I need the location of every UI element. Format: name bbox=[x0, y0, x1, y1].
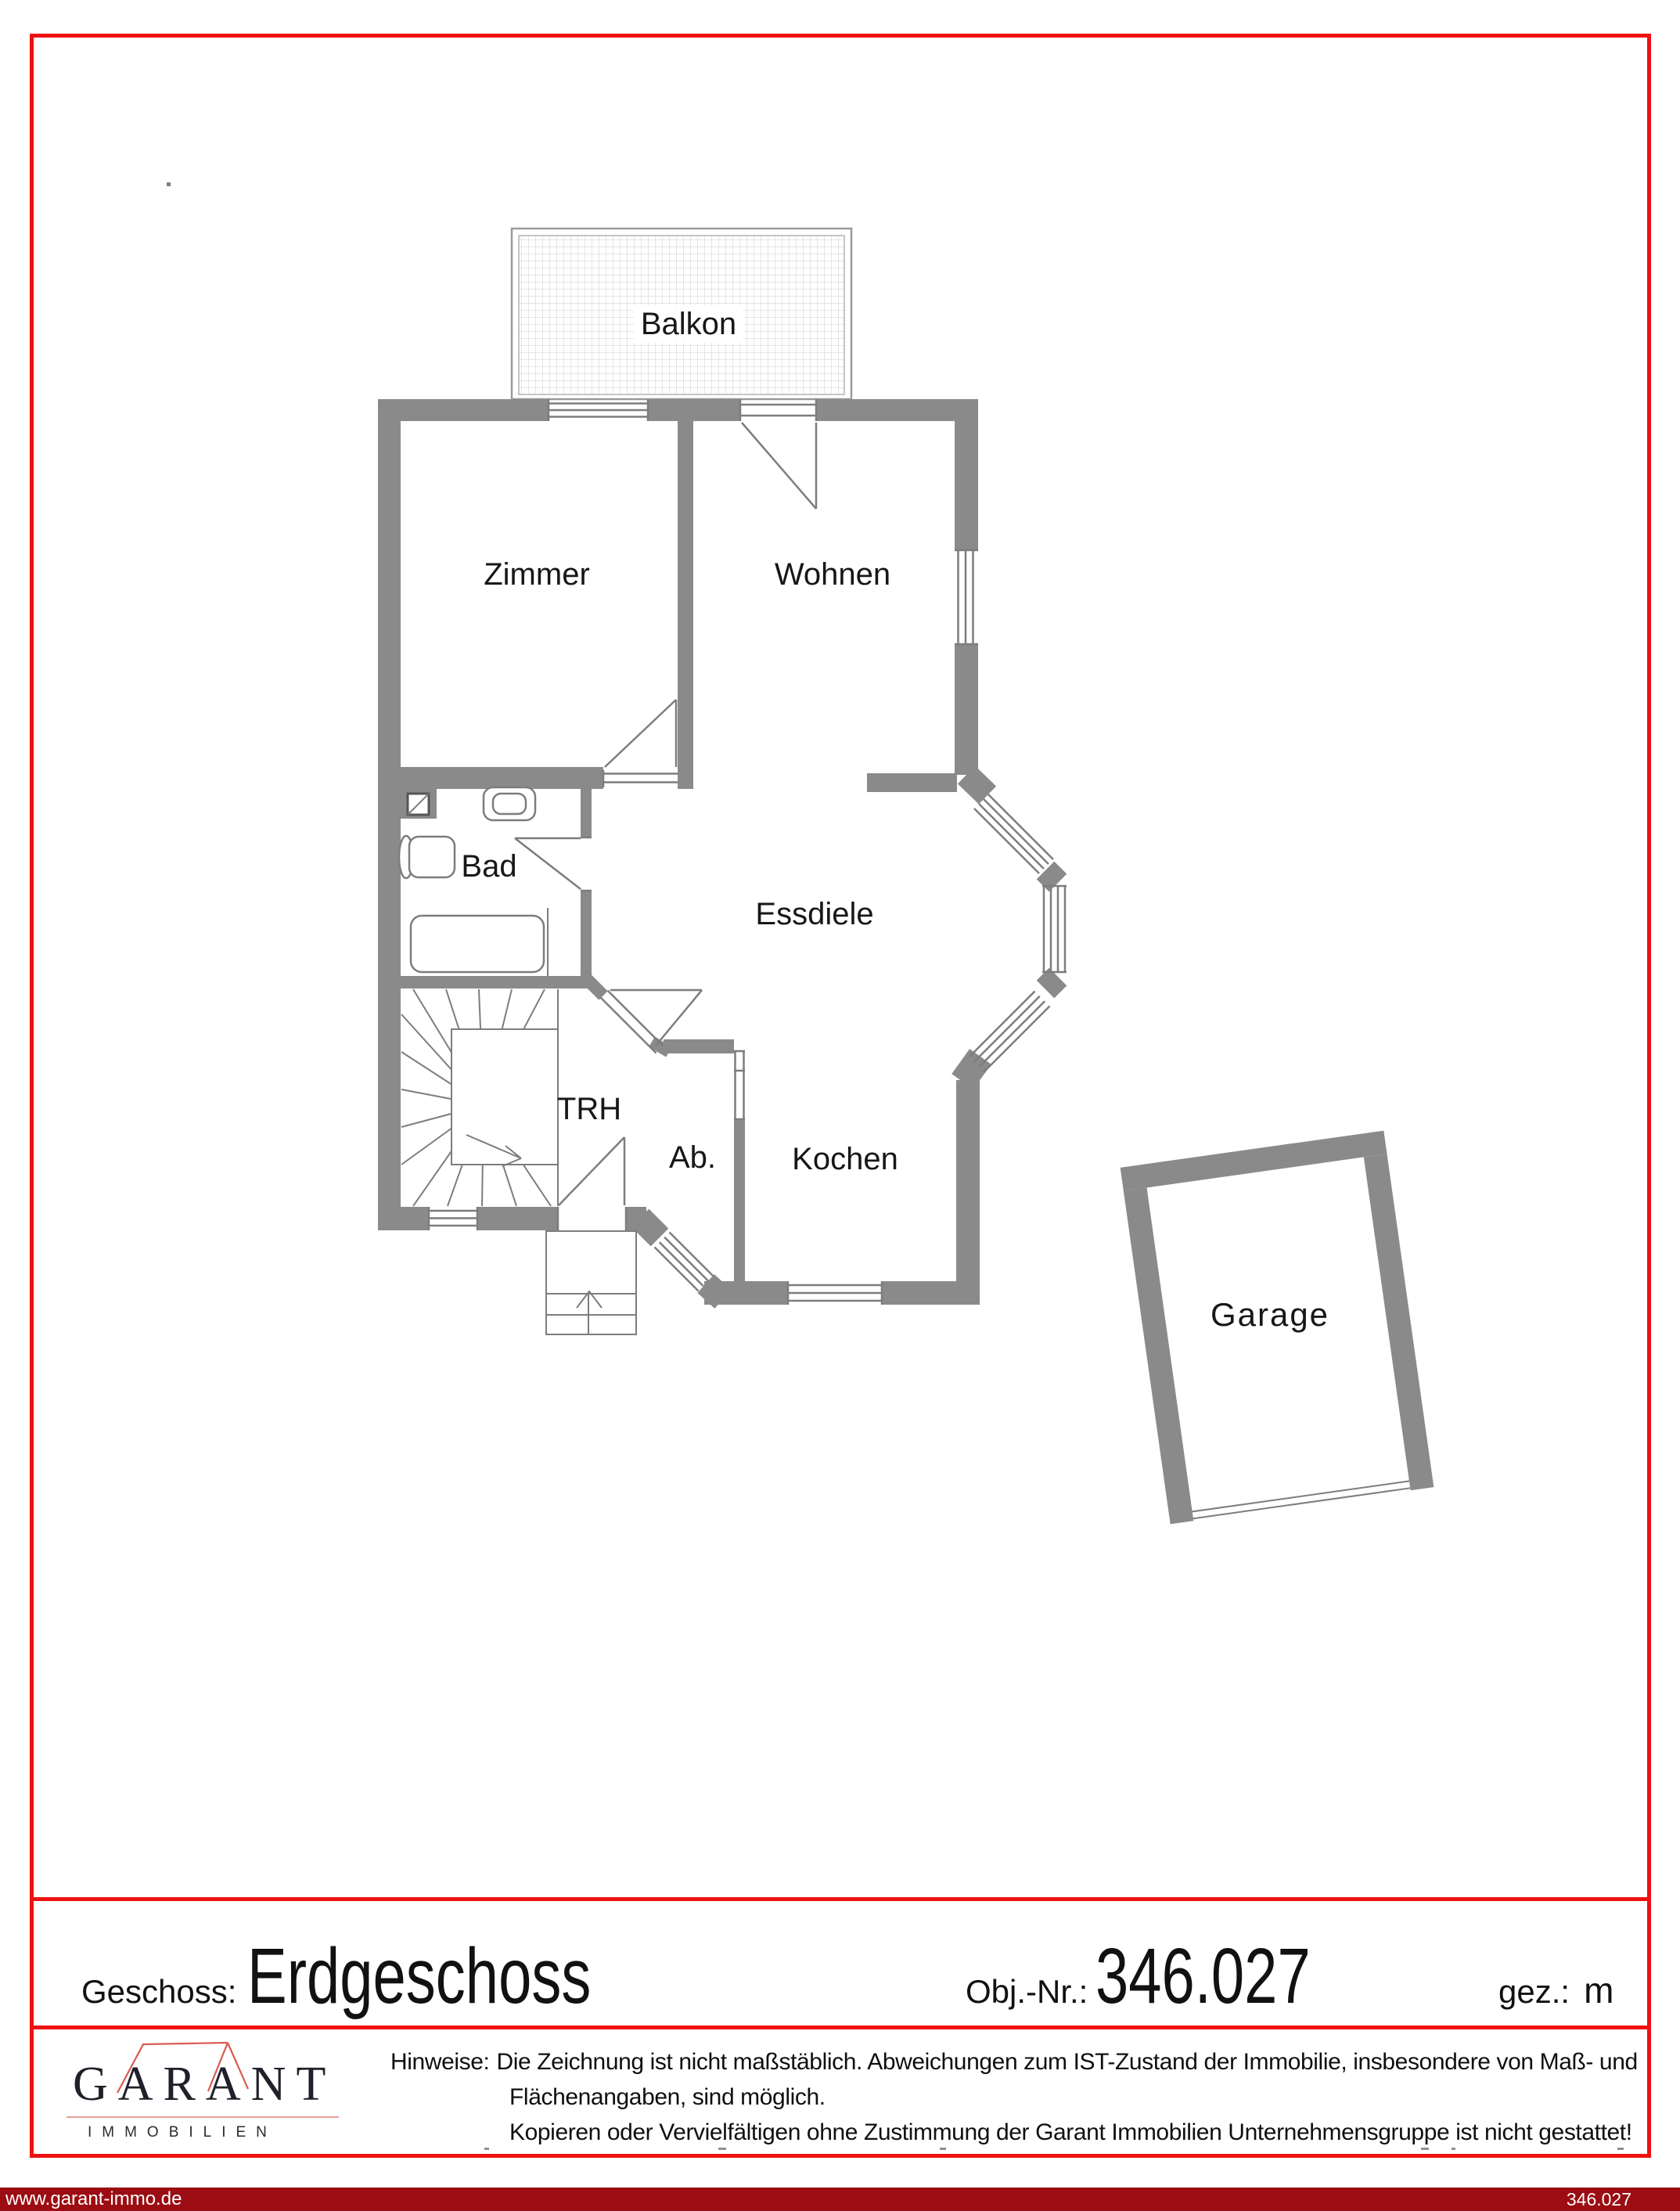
wall-bad-bottom bbox=[378, 976, 591, 988]
bay-corner-c bbox=[1045, 977, 1058, 989]
room-label-wohnen: Wohnen bbox=[775, 557, 890, 592]
wall-kochen-bottom-b bbox=[882, 1281, 980, 1305]
geschoss-row: Geschoss: Erdgeschoss bbox=[81, 1932, 700, 2022]
logo-divider-line bbox=[67, 2116, 339, 2118]
hinweise-label: Hinweise: bbox=[390, 2049, 489, 2075]
room-label-kochen: Kochen bbox=[792, 1142, 898, 1176]
wall-bad-right-lower bbox=[581, 891, 592, 988]
bathtub bbox=[411, 908, 548, 976]
hinweise-line-1: Hinweise:Die Zeichnung ist nicht maßstäb… bbox=[390, 2044, 1652, 2080]
garant-logo: GARANT IMMOBILIEN bbox=[59, 2035, 372, 2152]
footer-bar-url: www.garant-immo.de bbox=[0, 2188, 182, 2210]
floor-plan-drawing: Balkon Zimmer Wohnen Bad Essdiele TRH Ab… bbox=[0, 0, 1680, 2211]
bay-window-middle bbox=[1042, 886, 1067, 972]
room-label-ab: Ab. bbox=[669, 1140, 716, 1175]
wall-top-right bbox=[816, 399, 978, 421]
window-kochen-bottom bbox=[788, 1281, 882, 1305]
wall-right-upper bbox=[955, 421, 978, 550]
drawn-by-row: gez.: m bbox=[1498, 1969, 1613, 2011]
hinweise-line-2: Flächenangaben, sind möglich. bbox=[390, 2080, 1652, 2115]
object-number-label: Obj.-Nr.: bbox=[966, 1973, 1088, 2011]
room-label-balkon: Balkon bbox=[641, 307, 736, 341]
hinweise-block: Hinweise:Die Zeichnung ist nicht maßstäb… bbox=[390, 2044, 1652, 2150]
footer-bar: www.garant-immo.de 346.027 bbox=[0, 2188, 1680, 2211]
object-number-value: 346.027 bbox=[1095, 1932, 1311, 2022]
wall-trh-bottom-a bbox=[378, 1207, 429, 1230]
wall-zimmer-bad-band bbox=[401, 767, 603, 789]
window-wohnen-right bbox=[955, 550, 978, 644]
diag-corner-f bbox=[706, 1284, 723, 1299]
wall-ab-kochen-divider bbox=[734, 1119, 745, 1281]
shower-symbol bbox=[408, 794, 429, 815]
footer-bar-object-number: 346.027 bbox=[1567, 2189, 1631, 2210]
room-label-garage: Garage bbox=[1211, 1296, 1329, 1333]
stair-landing bbox=[451, 1029, 558, 1165]
diag-corner-e bbox=[640, 1218, 660, 1237]
wall-kochen-right bbox=[956, 1080, 980, 1305]
hinweise-text-1: Die Zeichnung ist nicht maßstäblich. Abw… bbox=[496, 2049, 1637, 2075]
room-label-zimmer: Zimmer bbox=[484, 557, 590, 592]
garage-door-line bbox=[1193, 1481, 1411, 1518]
wall-corners-diagonal bbox=[586, 775, 1058, 1299]
sink bbox=[399, 836, 455, 878]
bay-corner-a bbox=[966, 775, 987, 795]
bay-corner-b bbox=[1045, 870, 1058, 883]
door-zimmer-swing bbox=[603, 700, 678, 787]
wall-top-left bbox=[378, 399, 549, 421]
room-label-bad: Bad bbox=[461, 849, 516, 884]
bay-corner-d bbox=[962, 1057, 980, 1082]
drawn-by-label: gez.: bbox=[1498, 1973, 1570, 2011]
toilet bbox=[484, 787, 535, 820]
door-balcony-swing bbox=[742, 423, 816, 509]
drawn-by-value: m bbox=[1584, 1969, 1613, 2011]
room-label-essdiele: Essdiele bbox=[755, 897, 873, 931]
window-zimmer-top bbox=[549, 399, 648, 421]
geschoss-value: Erdgeschoss bbox=[247, 1932, 591, 2022]
wall-wohnen-bottom bbox=[867, 773, 957, 792]
staircase bbox=[401, 989, 558, 1206]
wall-right-lower bbox=[955, 644, 978, 775]
object-number-row: Obj.-Nr.: 346.027 bbox=[966, 1932, 1379, 2022]
entrance-porch-steps bbox=[546, 1231, 636, 1334]
hinweise-line-3: Kopieren oder Vervielfältigen ohne Zusti… bbox=[390, 2115, 1652, 2150]
wall-trh-bottom-b bbox=[477, 1207, 558, 1230]
window-ab-kochen-gap bbox=[734, 1051, 745, 1119]
logo-subtitle: IMMOBILIEN bbox=[88, 2124, 277, 2141]
wall-top-mid bbox=[648, 399, 740, 421]
room-label-trh: TRH bbox=[557, 1092, 621, 1126]
wall-left bbox=[378, 399, 401, 1230]
door-bad-swing bbox=[515, 837, 592, 891]
logo-title: GARANT bbox=[73, 2057, 336, 2112]
window-trh-bottom bbox=[429, 1207, 477, 1230]
geschoss-label: Geschoss: bbox=[81, 1973, 236, 2011]
bay-window-upper-diagonal bbox=[974, 794, 1053, 873]
wall-ab-top bbox=[664, 1039, 734, 1053]
balcony-door-sill bbox=[740, 399, 816, 421]
wall-zimmer-wohnen-divider bbox=[678, 421, 693, 789]
door-entrance-swing bbox=[558, 1137, 626, 1230]
trh-diagonal-stub bbox=[586, 978, 603, 996]
wall-bad-right-upper bbox=[581, 789, 592, 837]
